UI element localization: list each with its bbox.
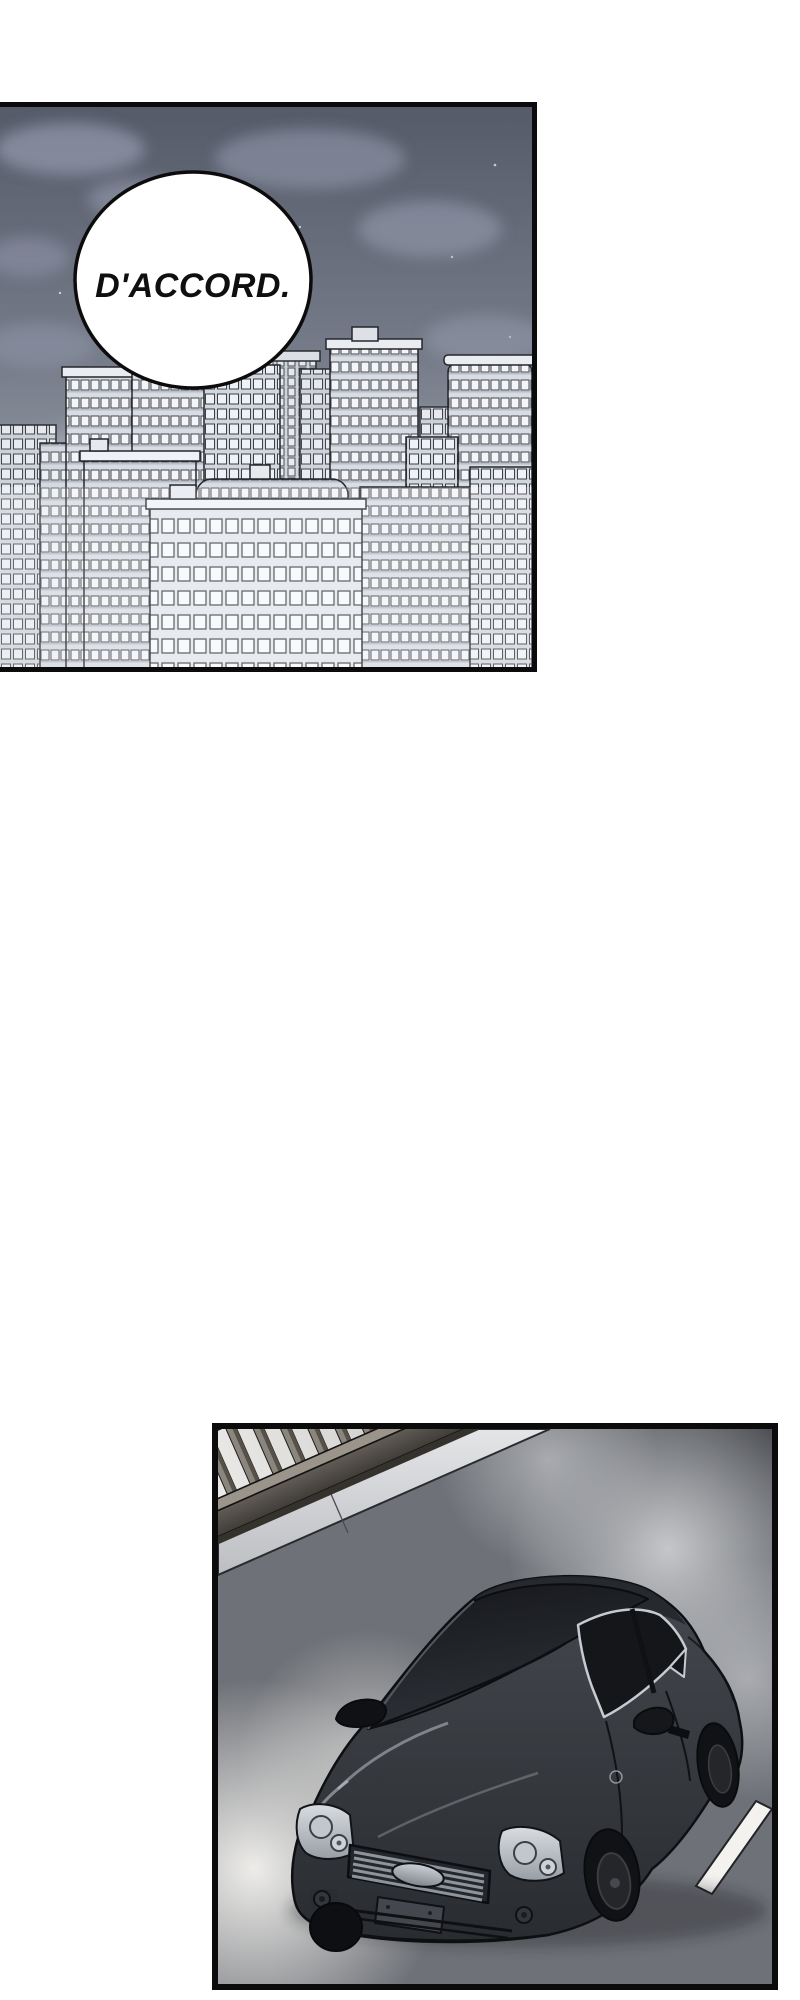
building-glow-wash	[0, 487, 532, 667]
comic-page: D'ACCORD.	[0, 0, 800, 2000]
panel-city-night: D'ACCORD.	[0, 102, 537, 672]
speech-bubble: D'ACCORD.	[75, 172, 311, 388]
street-illustration	[218, 1429, 772, 1984]
city-illustration: D'ACCORD.	[0, 107, 532, 667]
panel-street-car	[212, 1423, 778, 1990]
speech-bubble-text: D'ACCORD.	[95, 267, 291, 305]
